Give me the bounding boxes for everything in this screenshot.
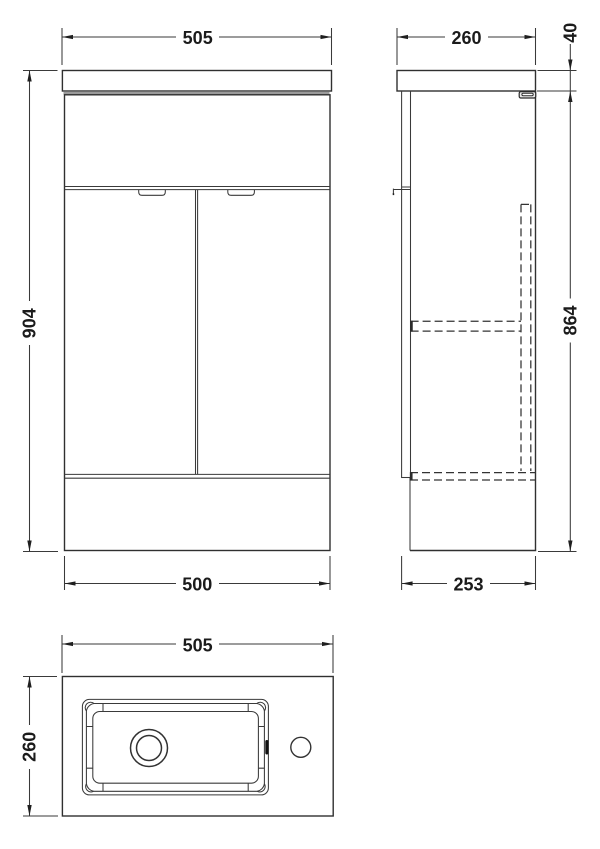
svg-text:505: 505 bbox=[183, 28, 213, 48]
svg-text:505: 505 bbox=[183, 636, 213, 656]
svg-text:260: 260 bbox=[451, 28, 481, 48]
svg-text:904: 904 bbox=[20, 308, 40, 338]
svg-text:864: 864 bbox=[561, 305, 581, 335]
svg-text:500: 500 bbox=[182, 575, 212, 595]
svg-text:253: 253 bbox=[453, 575, 483, 595]
svg-text:40: 40 bbox=[560, 23, 580, 43]
svg-text:260: 260 bbox=[20, 732, 40, 762]
